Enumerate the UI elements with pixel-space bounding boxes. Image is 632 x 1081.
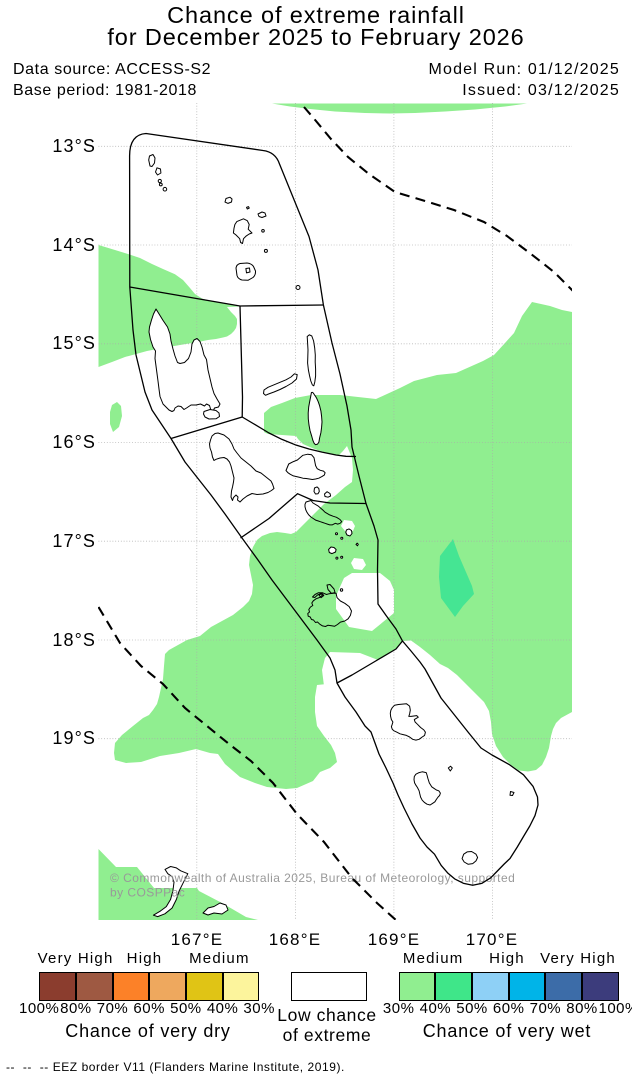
svg-text:by COSPPac: by COSPPac (110, 886, 185, 900)
